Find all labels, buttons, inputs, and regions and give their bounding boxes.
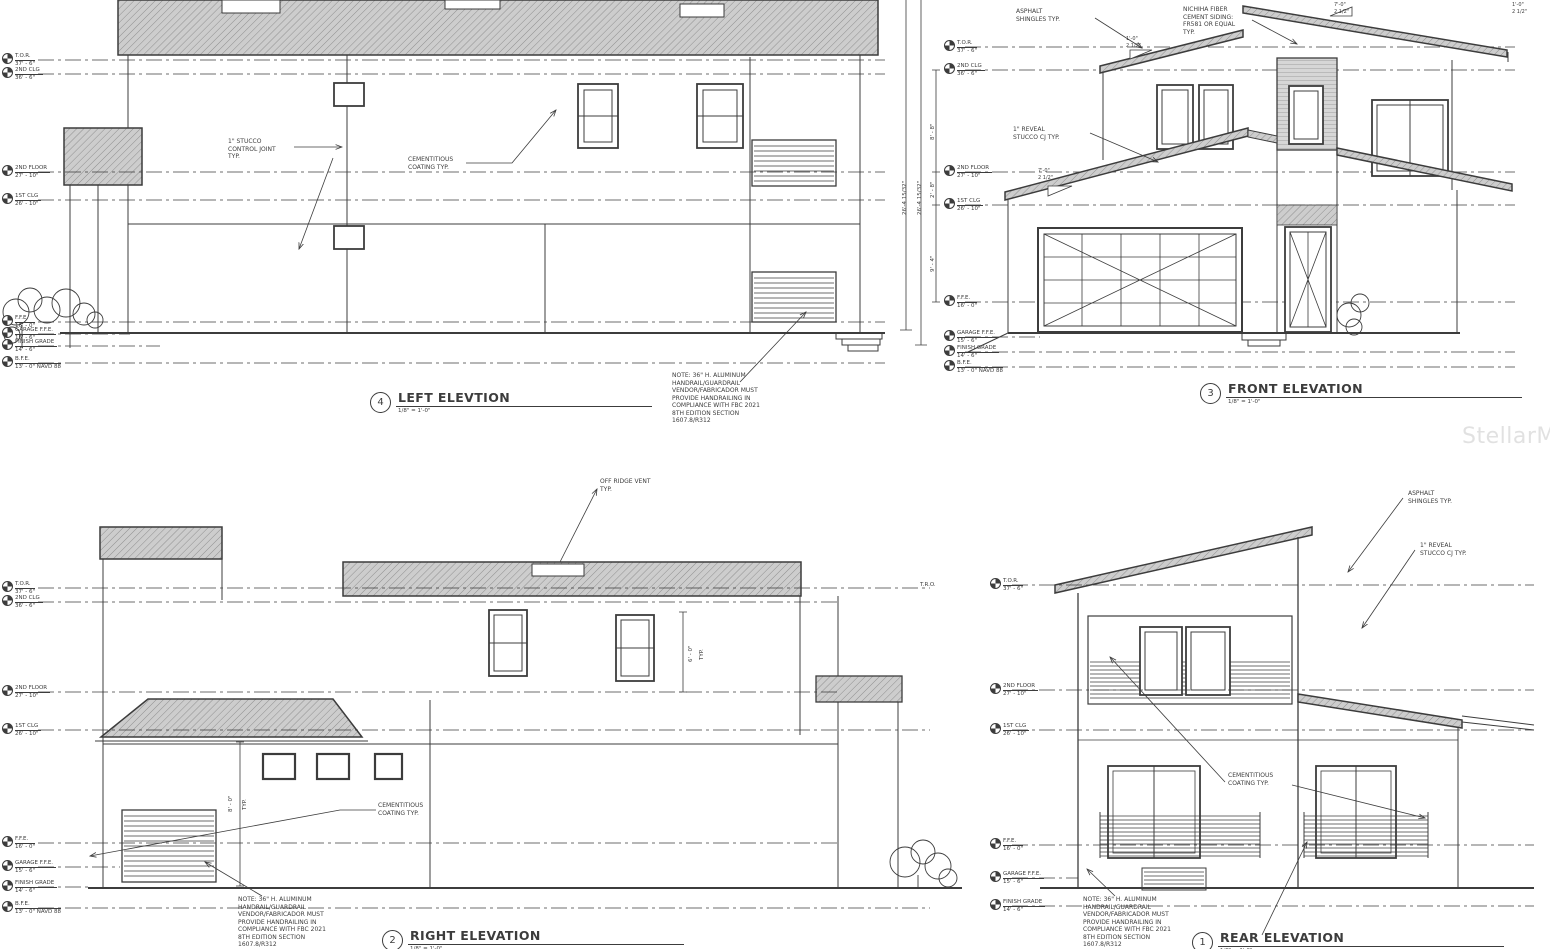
title-scale: 1/8" = 1'-0" bbox=[1226, 399, 1522, 405]
leaders-rear bbox=[1087, 498, 1425, 935]
title-front-elevation: 3 FRONT ELEVATION 1/8" = 1'-0" bbox=[1200, 381, 1522, 405]
datum-lines-left bbox=[38, 60, 885, 363]
datum-grade-front: FINISH GRADE14' - 6" bbox=[944, 345, 999, 359]
datum-tor-right: T.O.R.37' - 6" bbox=[2, 581, 35, 595]
benchmark-icon bbox=[2, 53, 13, 64]
title-scale: 1/8" = 1'-0" bbox=[396, 408, 652, 414]
note-asphalt-rear: ASPHALT SHINGLES TYP. bbox=[1408, 490, 1452, 505]
datum-grade-left: FINISH GRADE14' - 6" bbox=[2, 339, 57, 353]
benchmark-icon bbox=[990, 871, 1001, 882]
note-handrail-left: NOTE: 36" H. ALUMINUM HANDRAIL/GUARDRAIL… bbox=[672, 372, 760, 425]
dim-8-0-typ: TYP. bbox=[242, 799, 248, 810]
benchmark-icon bbox=[2, 723, 13, 734]
dim-overall-height: 26'-4 15/32" bbox=[902, 181, 908, 215]
datum-bfe-right: B.F.E.13' - 0" NAVD 88 bbox=[2, 901, 61, 915]
datum-2ndfloor-front: 2ND FLOOR27' - 10" bbox=[944, 165, 992, 179]
datum-garage-rear: GARAGE F.F.E.15' - 6" bbox=[990, 871, 1044, 885]
datum-garage-front: GARAGE F.F.E.15' - 6" bbox=[944, 330, 998, 344]
benchmark-icon bbox=[990, 683, 1001, 694]
datum-ffe-front: F.F.E.16' - 0" bbox=[944, 295, 977, 309]
datum-1stclg-rear: 1ST CLG26' - 10" bbox=[990, 723, 1029, 737]
note-asphalt-front: ASPHALT SHINGLES TYP. bbox=[1016, 8, 1060, 23]
benchmark-icon bbox=[2, 67, 13, 78]
leaders-left bbox=[294, 110, 806, 382]
dim-6-0-typ: TYP. bbox=[699, 649, 705, 660]
title-text: FRONT ELEVATION bbox=[1226, 381, 1522, 398]
datum-2ndfloor-left: 2ND FLOOR27' - 10" bbox=[2, 165, 50, 179]
slope-marker: 1'-0" 2 1/2" bbox=[1126, 36, 1141, 49]
benchmark-icon bbox=[2, 595, 13, 606]
front-elevation-drawing bbox=[900, 0, 1515, 367]
dim-8-0: 8' - 0" bbox=[228, 795, 234, 812]
benchmark-icon bbox=[990, 578, 1001, 589]
dim-8-8: 8' - 8" bbox=[930, 123, 936, 140]
dim-2-8: 2' - 8" bbox=[930, 181, 936, 198]
benchmark-icon bbox=[2, 315, 13, 326]
benchmark-icon bbox=[944, 40, 955, 51]
datum-bfe-front: B.F.E.13' - 0" NAVD 88 bbox=[944, 360, 1003, 374]
title-number: 3 bbox=[1200, 383, 1221, 404]
note-off-ridge-vent: OFF RIDGE VENT TYP. bbox=[600, 478, 651, 493]
title-text: RIGHT ELEVATION bbox=[408, 928, 684, 945]
benchmark-icon bbox=[2, 581, 13, 592]
datum-1stclg-front: 1ST CLG26' - 10" bbox=[944, 198, 983, 212]
title-rear-elevation: 1 REAR ELEVATION 1/8" = 1'-0" bbox=[1192, 930, 1504, 949]
benchmark-icon bbox=[944, 330, 955, 341]
note-cementitious-right: CEMENTITIOUS COATING TYP. bbox=[378, 802, 423, 817]
datum-ffe-rear: F.F.E.16' - 0" bbox=[990, 838, 1023, 852]
datum-grade-rear: FINISH GRADE14' - 6" bbox=[990, 899, 1045, 913]
datum-tor-rear: T.O.R.37' - 6" bbox=[990, 578, 1023, 592]
benchmark-icon bbox=[2, 193, 13, 204]
note-cementitious-left: CEMENTITIOUS COATING TYP. bbox=[408, 156, 453, 171]
datum-grade-right: FINISH GRADE14' - 6" bbox=[2, 880, 57, 894]
benchmark-icon bbox=[2, 339, 13, 350]
datum-garage-right: GARAGE F.F.E.15' - 6" bbox=[2, 860, 56, 874]
slope-marker: 1'-0" 2 1/2" bbox=[1512, 2, 1527, 15]
right-elevation-drawing bbox=[38, 489, 962, 908]
title-text: LEFT ELEVTION bbox=[396, 390, 652, 407]
datum-tor-left: T.O.R.37' - 6" bbox=[2, 53, 35, 67]
dim-overall-height-2: 26'-4 15/32" bbox=[917, 181, 923, 215]
benchmark-icon bbox=[2, 880, 13, 891]
note-stucco-joint: 1" STUCCO CONTROL JOINT TYP. bbox=[228, 138, 276, 161]
benchmark-icon bbox=[990, 899, 1001, 910]
benchmark-icon bbox=[944, 198, 955, 209]
note-cementitious-rear: CEMENTITIOUS COATING TYP. bbox=[1228, 772, 1273, 787]
benchmark-icon bbox=[944, 165, 955, 176]
datum-2ndclg-left: 2ND CLG36' - 6" bbox=[2, 67, 43, 81]
note-nichiha: NICHIHA FIBER CEMENT SIDING: FR581 OR EQ… bbox=[1183, 6, 1235, 36]
title-number: 2 bbox=[382, 930, 403, 949]
title-text: REAR ELEVATION bbox=[1218, 930, 1504, 947]
title-right-elevation: 2 RIGHT ELEVATION 1/8" = 1'-0" bbox=[382, 928, 684, 949]
bush-right bbox=[890, 840, 957, 888]
datum-2ndfloor-right: 2ND FLOOR27' - 10" bbox=[2, 685, 50, 699]
datum-2ndfloor-rear: 2ND FLOOR27' - 10" bbox=[990, 683, 1038, 697]
label-tro: T.R.O. bbox=[920, 582, 936, 589]
dim-6-0: 6' - 0" bbox=[688, 645, 694, 662]
benchmark-icon bbox=[2, 165, 13, 176]
note-handrail-right: NOTE: 36" H. ALUMINUM HANDRAIL/GUARDRAIL… bbox=[238, 896, 326, 949]
slope-marker: 7'-0" 2 1/2" bbox=[1334, 2, 1349, 15]
datum-2ndclg-right: 2ND CLG36' - 6" bbox=[2, 595, 43, 609]
note-handrail-rear: NOTE: 36" H. ALUMINUM HANDRAIL/GUARDRAIL… bbox=[1083, 896, 1171, 949]
datum-lines-right bbox=[38, 588, 930, 908]
datum-1stclg-right: 1ST CLG26' - 10" bbox=[2, 723, 41, 737]
title-left-elevation: 4 LEFT ELEVTION 1/8" = 1'-0" bbox=[370, 390, 652, 414]
title-number: 1 bbox=[1192, 932, 1213, 949]
benchmark-icon bbox=[2, 356, 13, 367]
benchmark-icon bbox=[990, 723, 1001, 734]
datum-lines-rear bbox=[1012, 585, 1534, 906]
rear-elevation-drawing bbox=[1012, 498, 1534, 935]
benchmark-icon bbox=[944, 295, 955, 306]
elevation-sheet: T.O.R.37' - 6" 2ND CLG36' - 6" 2ND FLOOR… bbox=[0, 0, 1550, 949]
note-reveal-rear: 1" REVEAL STUCCO CJ TYP. bbox=[1420, 542, 1467, 557]
datum-bfe-left: B.F.E.13' - 0" NAVD 88 bbox=[2, 356, 61, 370]
benchmark-icon bbox=[2, 860, 13, 871]
left-elevation-drawing bbox=[3, 0, 885, 382]
slope-marker: 7'-0" 2 1/2" bbox=[1038, 168, 1053, 181]
stellar-mls-watermark: StellarMLS bbox=[1462, 424, 1550, 449]
benchmark-icon bbox=[2, 327, 13, 338]
title-number: 4 bbox=[370, 392, 391, 413]
benchmark-icon bbox=[2, 685, 13, 696]
benchmark-icon bbox=[944, 360, 955, 371]
dim-9-4: 9' - 4" bbox=[930, 255, 936, 272]
benchmark-icon bbox=[944, 345, 955, 356]
benchmark-icon bbox=[2, 901, 13, 912]
benchmark-icon bbox=[944, 63, 955, 74]
datum-1stclg-left: 1ST CLG26' - 10" bbox=[2, 193, 41, 207]
datum-ffe-right: F.F.E.16' - 0" bbox=[2, 836, 35, 850]
note-reveal-front: 1" REVEAL STUCCO CJ TYP. bbox=[1013, 126, 1060, 141]
datum-tor-front: T.O.R.37' - 6" bbox=[944, 40, 977, 54]
datum-2ndclg-front: 2ND CLG36' - 6" bbox=[944, 63, 985, 77]
bush bbox=[1337, 294, 1369, 335]
benchmark-icon bbox=[2, 836, 13, 847]
benchmark-icon bbox=[990, 838, 1001, 849]
